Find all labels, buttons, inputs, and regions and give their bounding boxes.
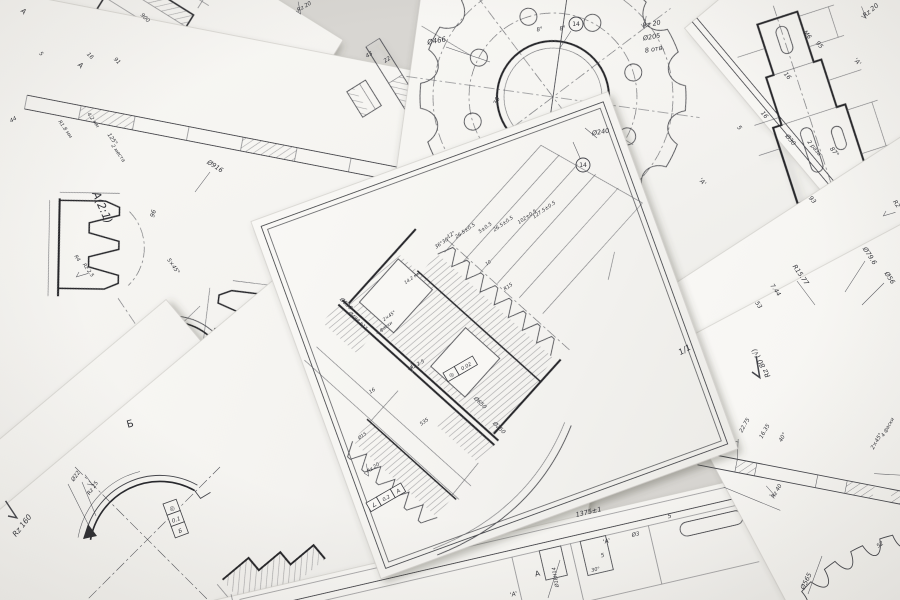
vignette-overlay xyxy=(0,0,900,600)
blueprint-photo: ◎ 0.1 Б ◎ 0.02 ∠ 0.2 A Ø466 Rz 20 Ø205 8… xyxy=(0,0,900,600)
blueprint-scene: ◎ 0.1 Б ◎ 0.02 ∠ 0.2 A Ø466 Rz 20 Ø205 8… xyxy=(0,0,900,600)
